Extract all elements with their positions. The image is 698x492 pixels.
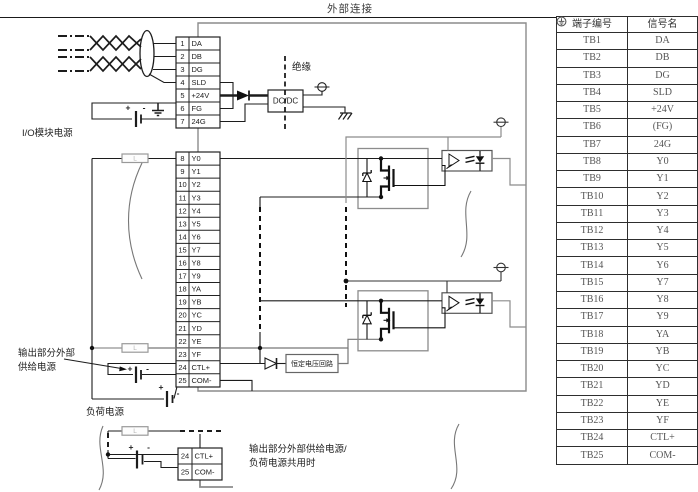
arrow-icon [119,366,127,371]
cable-shield-icon [140,31,154,77]
terminal-label: DG [192,65,203,74]
terminal-num: 9 [180,167,184,176]
dcdc-label: DC/DC [273,97,299,106]
terminal-num: 7 [180,117,184,126]
battery-minus-label: - [143,103,146,113]
battery-plus-label: + [129,442,134,452]
table-row: TB12Y4 [557,222,698,239]
io-module-power-label: I/O模块电源 [22,127,73,139]
terminal-num: 17 [178,272,186,281]
terminal-num: 19 [178,298,186,307]
header-divider [0,17,557,18]
col-header-terminal: 端子编号 [557,17,628,33]
fg-signal-text: (FG) [653,122,672,132]
terminal-label: YA [192,285,201,294]
table-row: TB4SLD [557,84,698,101]
terminal-block-shared: 24 CTL+ 25 COM- [178,448,222,480]
chassis-ground-icon [339,113,353,120]
terminal-label: Y0 [192,154,201,163]
table-row: TB23YF [557,412,698,429]
terminal-num: 6 [180,104,184,113]
terminal-label: YE [192,337,202,346]
terminal-label: YF [192,350,202,359]
output-circuit-1 [220,118,527,209]
page: 1 2 3 4 5 6 7 DA DB DG SLD +24V FG 24G +… [0,0,698,492]
table-row: TB13Y5 [557,240,698,257]
mosfet-icon [381,159,445,198]
earth-ground-icon [152,103,164,116]
zener-diode-icon [363,301,371,340]
table-header-row: 端子编号 信号名 [557,17,698,33]
terminal-label: YD [192,324,203,333]
battery-minus-label: - [146,364,149,374]
table-row: TB25COM- [557,447,698,464]
table-row: TB5+24V [557,102,698,119]
battery-plus-label: + [159,382,164,392]
load-mark: L [133,156,137,163]
terminal-block-lower: 8 9 10 11 12 13 14 15 16 17 18 19 20 21 … [176,152,220,387]
table-row: TB15Y7 [557,274,698,291]
col-header-signal: 信号名 [628,17,698,33]
terminal-label: CTL+ [192,363,211,372]
table-row: TB11Y3 [557,205,698,222]
table-row: TB19YB [557,343,698,360]
led-icon [476,299,484,305]
terminal-label: CTL+ [195,452,214,461]
table-row: TB724G [557,136,698,153]
diode-icon [237,91,249,101]
load-mark: L [133,345,137,352]
insulation-label: 绝缘 [292,61,312,73]
load-power-label: 负荷电源 [86,406,125,418]
terminal-num: 23 [178,350,186,359]
terminal-label: FG [192,104,203,113]
terminal-num: 15 [178,246,186,255]
terminal-num: 21 [178,324,186,333]
terminal-label: YB [192,298,202,307]
table-row: TB17Y9 [557,309,698,326]
constant-voltage-label: 恒定电压回路 [291,359,333,368]
terminal-num: 25 [178,376,186,385]
battery-minus-label: - [147,442,150,452]
table-row: TB18YA [557,326,698,343]
terminal-label: DB [192,52,202,61]
terminal-num: 24 [181,452,189,461]
terminal-label: Y9 [192,272,201,281]
terminal-num: 3 [180,65,184,74]
terminal-num: 25 [181,468,189,477]
battery-plus-label: + [126,103,131,113]
battery-minus-label: - [177,388,180,398]
terminal-label: YC [192,311,203,320]
load-power-battery [92,388,177,408]
external-supply-battery [64,359,176,383]
terminal-num: 2 [180,52,184,61]
terminal-num: 8 [180,154,184,163]
terminal-signal-table: 端子编号 信号名 TB1DA TB2DB TB3DG TB4SLD TB5+24… [556,16,698,465]
table-row: TB2DB [557,50,698,67]
terminal-label: SLD [192,78,207,87]
terminal-label: Y1 [192,167,201,176]
terminal-num: 13 [178,219,186,228]
junction-dots [90,156,383,456]
terminal-num: 24 [178,363,186,372]
omission-marks [99,163,471,490]
page-title: 外部连接 [300,1,400,16]
terminal-num: 4 [180,78,184,87]
terminal-label: Y7 [192,246,201,255]
terminal-label: Y2 [192,180,201,189]
table-row: TB16Y8 [557,291,698,308]
mosfet-icon [381,301,445,340]
terminal-num: 1 [180,39,184,48]
terminal-num: 12 [178,206,186,215]
table-row: TB9Y1 [557,171,698,188]
load-mark: L [133,428,137,435]
terminal-label: Y8 [192,259,201,268]
optocoupler-icon [447,151,485,171]
output-ext-supply-label-1: 输出部分外部 [18,347,75,359]
shared-note-line2: 负荷电源共用时 [249,457,316,469]
table-row: TB24CTL+ [557,430,698,447]
terminal-label: Y5 [192,219,201,228]
terminal-num: 5 [180,91,184,100]
terminal-num: 16 [178,259,186,268]
io-module-power-circuit [92,103,176,127]
terminal-label: COM- [192,376,212,385]
table-row: TB10Y2 [557,188,698,205]
terminal-label: Y3 [192,193,201,202]
table-row: TB14Y6 [557,257,698,274]
terminal-label: 24G [192,117,206,126]
terminal-label: Y4 [192,206,201,215]
terminal-num: 14 [178,232,186,241]
battery-plus-label: + [128,364,133,374]
table-row: TB8Y0 [557,153,698,170]
terminal-label: +24V [192,91,210,100]
terminal-num: 22 [178,337,186,346]
optocoupler-icon [447,293,485,313]
led-icon [476,156,484,162]
terminal-label: DA [192,39,202,48]
terminal-label: COM- [195,468,215,477]
table-row: TB22YE [557,395,698,412]
output-circuit-2 [260,263,527,351]
table-row: TB3DG [557,67,698,84]
terminal-block-upper: 1 2 3 4 5 6 7 DA DB DG SLD +24V FG 24G [176,37,220,128]
table-row: TB6 (FG) [557,119,698,136]
terminal-num: 11 [179,193,187,202]
table-row: TB1DA [557,33,698,50]
output-ext-supply-label-2: 供给电源 [18,361,57,373]
terminal-label: Y6 [192,232,201,241]
omission-rails [260,197,346,364]
table-row: TB21YD [557,378,698,395]
shared-note-line1: 输出部分外部供给电源/ [249,443,347,455]
terminal-num: 10 [178,180,186,189]
shielded-cable [58,31,176,83]
constant-voltage-circuit [220,348,348,391]
internal-rail-loop [198,23,526,487]
zener-diode-icon [363,159,371,198]
terminal-num: 20 [178,311,186,320]
diode-icon [265,358,277,369]
table-row: TB20YC [557,361,698,378]
terminal-num: 18 [178,285,186,294]
